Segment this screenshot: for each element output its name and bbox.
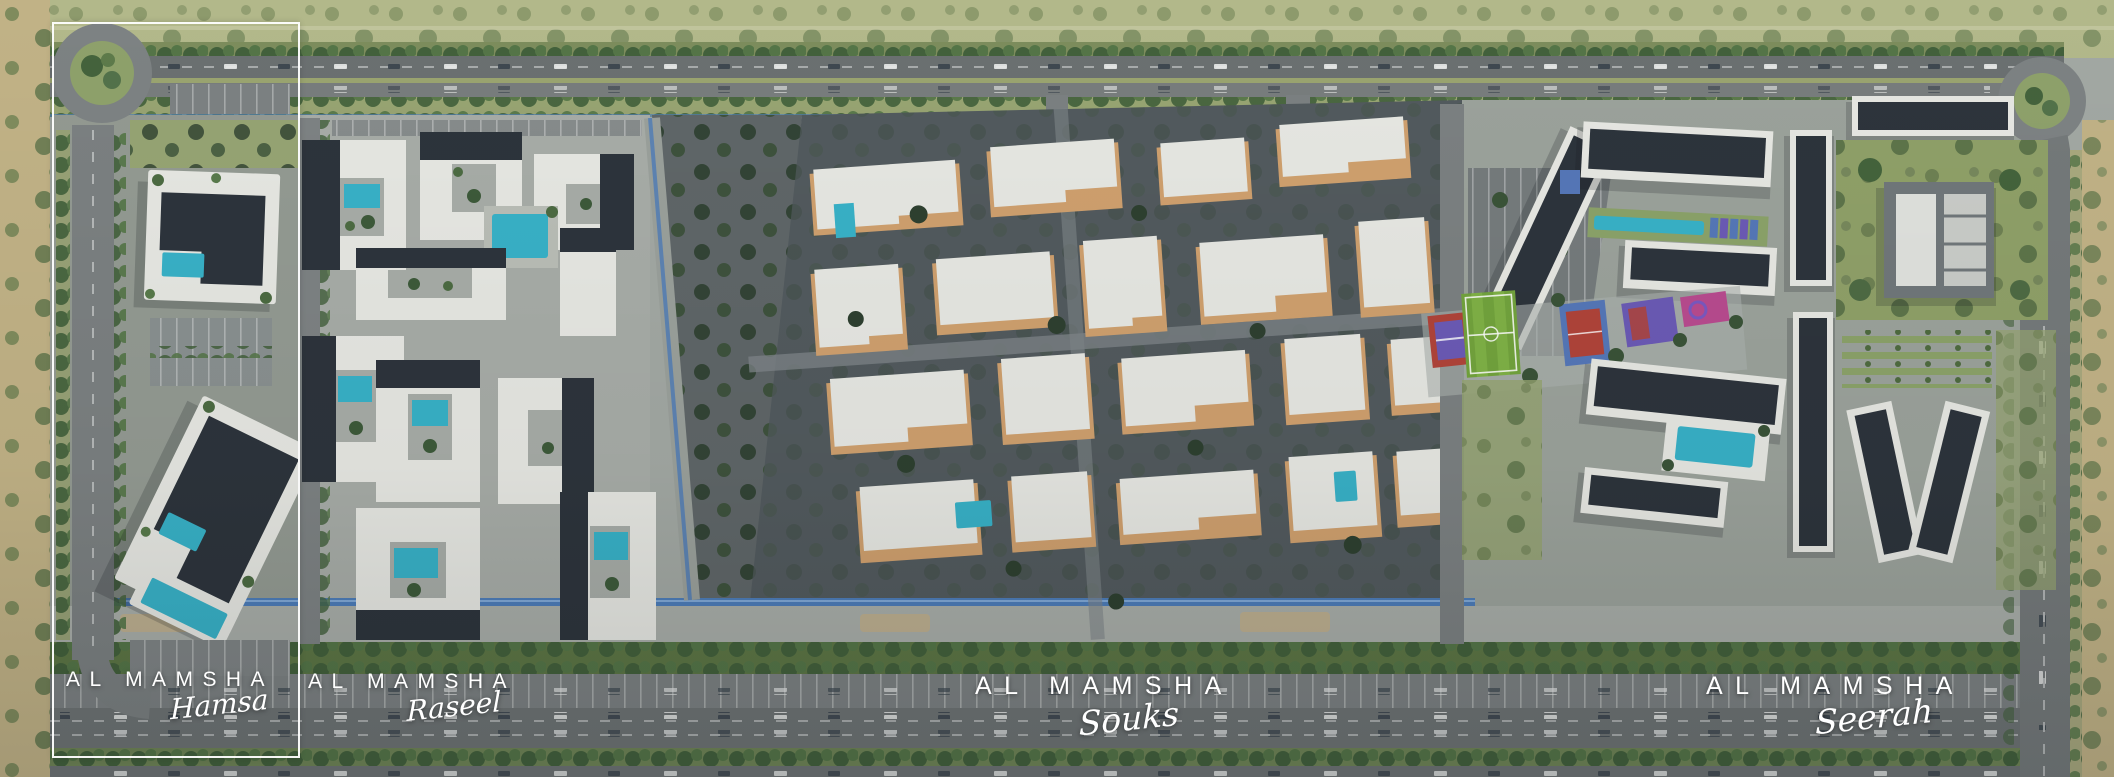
district-label-hamsa: AL MAMSHA Hamsa [62,668,278,721]
aerial-scene [0,0,2114,777]
district-label-seerah: AL MAMSHA Seerah [1706,672,1936,736]
district-label-souks: AL MAMSHA Souks [975,672,1205,738]
district-label-raseel: AL MAMSHA Raseel [308,670,508,723]
masterplan-canvas: AL MAMSHA Hamsa AL MAMSHA Raseel AL MAMS… [0,0,2114,777]
lighting-overlay [0,0,2114,777]
